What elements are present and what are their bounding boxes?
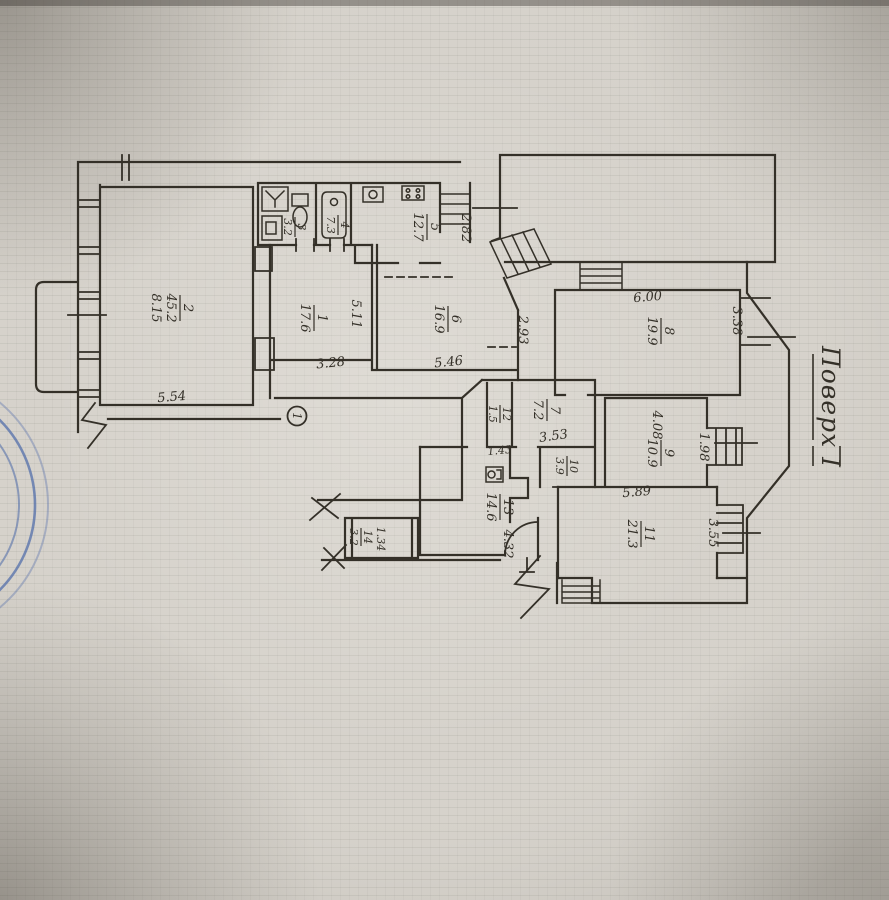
dimension-label: 1.34	[374, 527, 387, 552]
svg-text:7.2: 7.2	[530, 400, 545, 421]
svg-text:6: 6	[448, 315, 463, 323]
svg-text:10: 10	[567, 459, 580, 473]
svg-text:3.9: 3.9	[553, 457, 566, 475]
svg-text:3: 3	[295, 224, 308, 231]
dimension-label: 3.28	[315, 355, 345, 373]
svg-text:7: 7	[547, 406, 562, 415]
room-label-12: 121.5	[486, 405, 513, 423]
dimension-label: 5.89	[622, 484, 652, 501]
svg-text:8: 8	[661, 327, 676, 335]
svg-text:14: 14	[361, 530, 374, 544]
svg-text:11: 11	[641, 526, 656, 543]
svg-text:1: 1	[314, 314, 329, 322]
floor-plan-canvas: 117.6 245.2 33.2 47.3 512.7 616.9 77.2 8…	[0, 0, 889, 900]
svg-text:9: 9	[661, 449, 676, 457]
dimension-label: 5.46	[433, 354, 463, 372]
svg-text:5: 5	[427, 223, 442, 231]
dimension-label: 6.00	[633, 289, 663, 306]
svg-text:7.3: 7.3	[324, 216, 337, 234]
svg-text:13: 13	[500, 499, 515, 516]
svg-text:3.2: 3.2	[281, 218, 294, 236]
room-label-14: 143.2	[347, 528, 374, 546]
dimension-label: 1.98	[696, 433, 711, 462]
dimension-label: 4.08	[649, 410, 664, 440]
dimension-label: 2.82	[458, 213, 473, 243]
svg-text:12.7: 12.7	[410, 213, 425, 243]
svg-text:1: 1	[290, 412, 304, 420]
svg-text:4: 4	[338, 221, 351, 229]
photo-top-edge	[0, 0, 889, 6]
svg-text:14.6: 14.6	[483, 493, 498, 522]
svg-text:19.9: 19.9	[644, 317, 659, 346]
scanned-floor-plan-photo: 117.6 245.2 33.2 47.3 512.7 616.9 77.2 8…	[0, 0, 889, 900]
dimension-label: 5.54	[157, 389, 187, 406]
dimension-label: 4.32	[500, 529, 515, 559]
dimension-label: 1.43	[487, 443, 513, 458]
svg-text:17.6: 17.6	[297, 304, 312, 333]
svg-text:45.2: 45.2	[163, 293, 178, 323]
dimension-label: 3.38	[729, 307, 744, 336]
svg-text:16.9: 16.9	[431, 305, 446, 334]
svg-text:3.2: 3.2	[347, 528, 360, 546]
svg-text:2: 2	[180, 303, 195, 312]
paper-background	[0, 0, 889, 900]
dimension-label: 8.15	[148, 294, 163, 323]
dimension-label: 3.55	[705, 519, 720, 548]
svg-text:10.9: 10.9	[644, 439, 659, 468]
svg-text:12: 12	[500, 407, 513, 421]
dimension-label: 5.11	[348, 300, 363, 329]
dimension-label: 2.93	[515, 315, 530, 345]
svg-text:1.5: 1.5	[486, 405, 499, 423]
floor-title: Поверх I	[813, 345, 845, 468]
svg-text:21.3: 21.3	[624, 519, 639, 549]
